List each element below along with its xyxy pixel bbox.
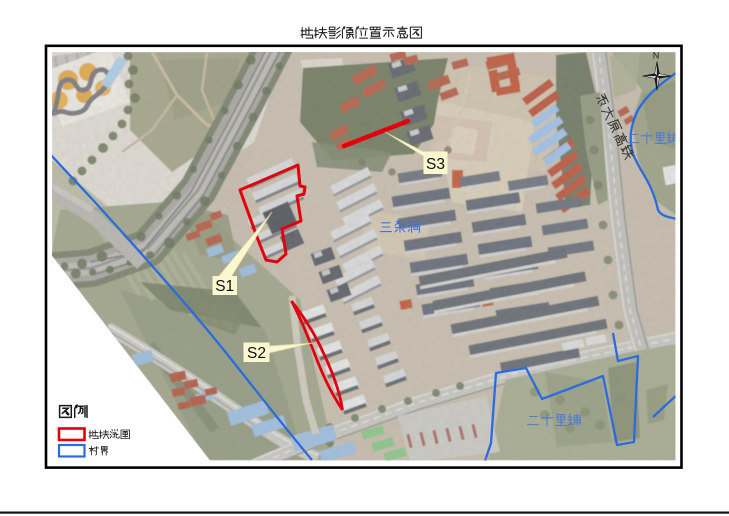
svg-text:S1: S1 [215,278,234,295]
svg-text:S3: S3 [426,156,445,173]
svg-text:S2: S2 [247,345,266,362]
svg-text:N: N [653,51,660,61]
